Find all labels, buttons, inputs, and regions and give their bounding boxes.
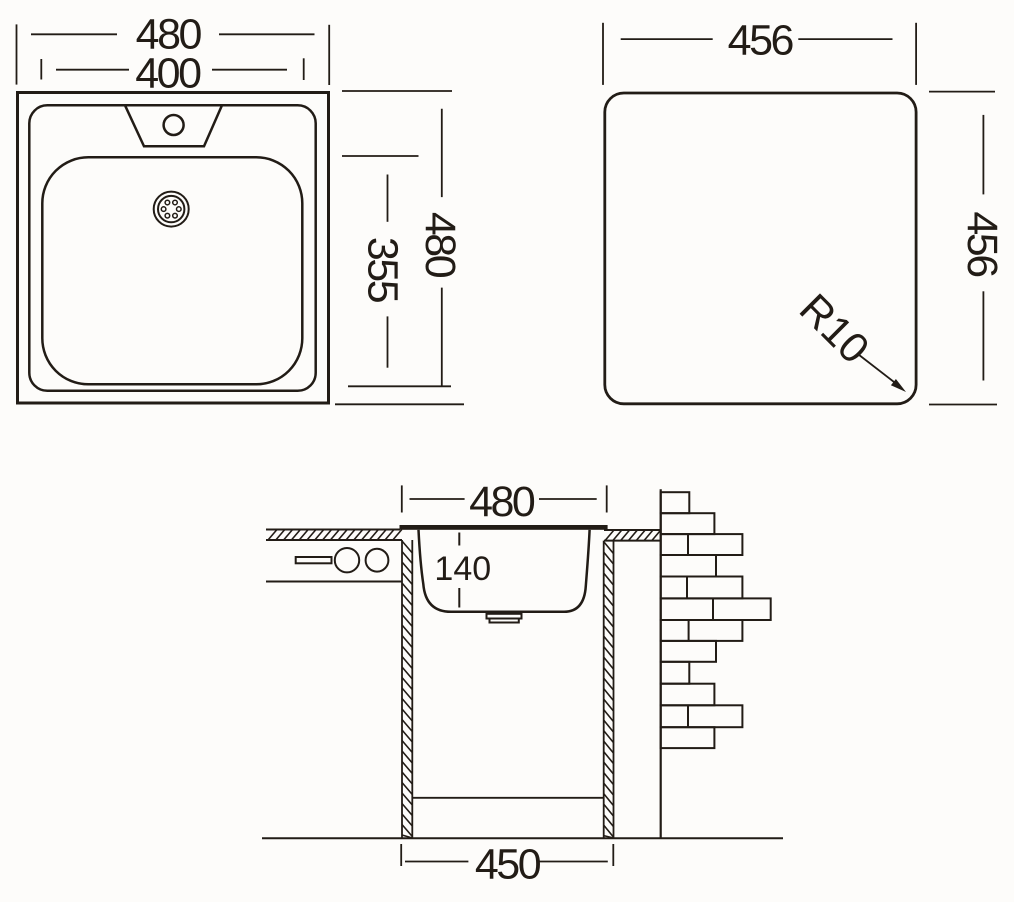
svg-text:480: 480 [416,212,464,278]
svg-text:450: 450 [475,840,541,888]
svg-text:140: 140 [434,550,491,588]
svg-text:480: 480 [469,478,535,526]
svg-text:400: 400 [135,50,201,98]
svg-text:355: 355 [359,237,407,303]
svg-text:456: 456 [958,211,1006,277]
svg-text:456: 456 [728,17,794,65]
